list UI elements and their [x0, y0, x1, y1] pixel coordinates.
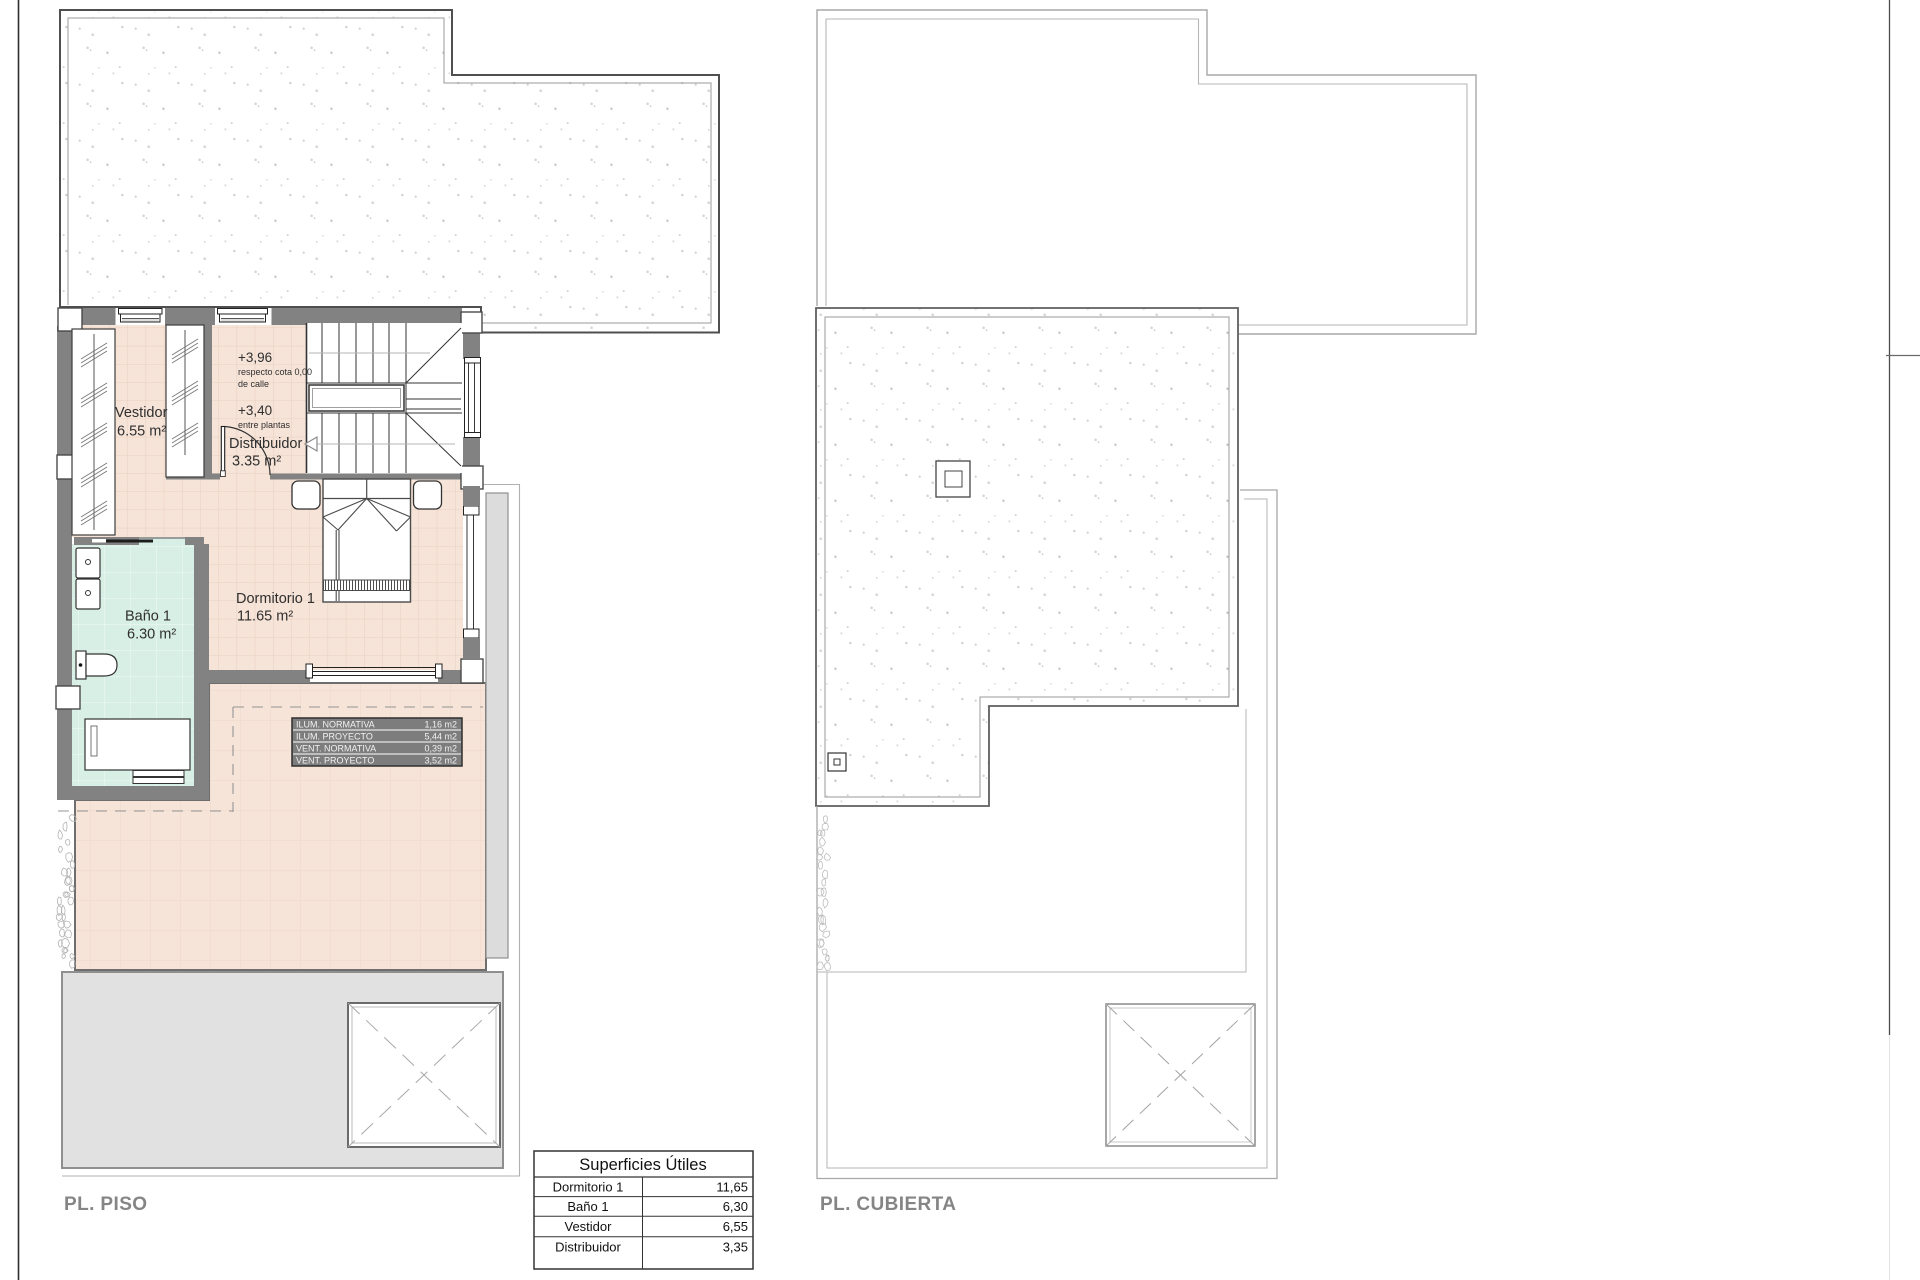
svg-text:6,30: 6,30: [723, 1199, 748, 1214]
svg-text:+3,40: +3,40: [238, 403, 272, 418]
svg-text:3,52 m2: 3,52 m2: [424, 756, 457, 766]
svg-text:Vestidor: Vestidor: [565, 1219, 613, 1234]
svg-text:ILUM. PROYECTO: ILUM. PROYECTO: [296, 732, 373, 742]
svg-text:PL. CUBIERTA: PL. CUBIERTA: [820, 1194, 956, 1215]
svg-text:3.35 m²: 3.35 m²: [232, 454, 281, 470]
svg-text:Distribuidor: Distribuidor: [555, 1240, 621, 1255]
svg-text:0,39 m2: 0,39 m2: [424, 744, 457, 754]
svg-text:1,16 m2: 1,16 m2: [424, 720, 457, 730]
svg-text:6.55 m²: 6.55 m²: [117, 424, 166, 440]
svg-text:11.65 m²: 11.65 m²: [237, 609, 293, 625]
svg-text:ILUM. NORMATIVA: ILUM. NORMATIVA: [296, 720, 375, 730]
svg-text:PL. PISO: PL. PISO: [64, 1194, 147, 1215]
svg-text:Baño 1: Baño 1: [567, 1199, 608, 1214]
svg-text:5,44 m2: 5,44 m2: [424, 732, 457, 742]
svg-text:6,55: 6,55: [723, 1219, 748, 1234]
svg-text:VENT. NORMATIVA: VENT. NORMATIVA: [296, 744, 376, 754]
svg-text:3,35: 3,35: [723, 1240, 748, 1255]
svg-text:de calle: de calle: [238, 379, 269, 389]
svg-text:Superficies Útiles: Superficies Útiles: [579, 1155, 706, 1174]
svg-text:entre plantas: entre plantas: [238, 420, 291, 430]
svg-text:11,65: 11,65: [716, 1180, 748, 1195]
svg-text:6.30 m²: 6.30 m²: [127, 627, 176, 643]
svg-text:VENT. PROYECTO: VENT. PROYECTO: [296, 756, 374, 766]
svg-text:+3,96: +3,96: [238, 350, 272, 365]
svg-text:Vestidor: Vestidor: [115, 405, 168, 421]
svg-text:Dormitorio 1: Dormitorio 1: [236, 591, 315, 607]
svg-text:Baño 1: Baño 1: [125, 609, 171, 625]
svg-text:Dormitorio 1: Dormitorio 1: [553, 1180, 624, 1195]
svg-text:respecto cota 0,00: respecto cota 0,00: [238, 367, 312, 377]
svg-text:Distribuidor: Distribuidor: [229, 436, 302, 452]
